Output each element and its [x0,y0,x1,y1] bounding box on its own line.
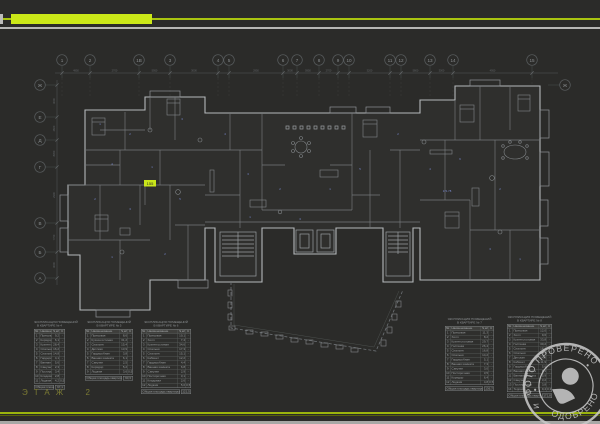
table-cell: 6,1 [52,339,60,343]
table-grid: №НаименованиеS,м²К1Прихожая9,2-2Коридор6… [34,329,65,384]
table-cell: - [128,334,133,338]
table-cell: Кладовая [147,379,178,383]
table-cell: Спальня [40,348,52,352]
table-row: 12Лоджия4,80,5 [446,381,494,385]
table-cell: - [186,361,191,365]
table-cell: К [60,330,65,334]
table-cell: 26,4 [481,345,489,349]
table-cell: Спальня [451,354,481,358]
table-cell: - [186,366,191,370]
table-cell: Лоджия [40,379,52,383]
grid-bubble-label: 11 [388,58,393,63]
table-total-row: Общая площадь квартиры121,5 [141,390,191,395]
dim-value: 2950 [253,68,259,72]
dim-value: 2300 [52,192,56,198]
table-cell: - [489,354,494,358]
table-cell: 16,2 [52,348,60,352]
table-cell: 31,2 [120,339,128,343]
table-cell: 34,6 [178,343,186,347]
dim-value: 4950 [73,68,79,72]
table-title: ЭКСПЛИКАЦИЯ ПОМЕЩЕНИЙВ КВАРТИРЕ № 6 [141,321,191,328]
table-cell: - [186,379,191,383]
table-cell: Кухня-столовая [451,340,481,344]
table-cell: Наименование [147,330,178,334]
grid-bubble-label: 14 [450,58,456,63]
table-cell: 2,3 [52,366,60,370]
table-cell: - [128,357,133,361]
grid-bubble-label: Ж [563,83,568,88]
table-cell: - [128,352,133,356]
table-cell: 3,4 [52,370,60,374]
dim-value: 7750 [52,234,56,240]
dim-value: 2600 [52,125,56,131]
table-cell: Гардеробная [91,352,120,356]
table-cell: - [60,339,65,343]
table-cell: Ванная комната [147,366,178,370]
highlighted-room-tag: 155 [144,180,156,187]
table-cell: - [128,339,133,343]
table-total-row: Общая площадь квартиры90,3 [85,376,133,381]
table-cell: 4,8 [481,381,489,385]
table-cell: - [60,361,65,365]
table-cell: 2,5 [120,361,128,365]
table-cell: К [547,325,552,329]
table-title: ЭКСПЛИКАЦИЯ ПОМЕЩЕНИЙВ КВАРТИРЕ № 8 [507,316,552,323]
table-cell: Ванная комната [91,357,120,361]
table-cell: 29,7 [481,340,489,344]
grid-bubble-label: 6 [282,58,285,63]
table-cell: Спальня [40,352,52,356]
approval-stamp: ФОТО ПРОВЕРЕНО ОДОБРЕНО И • • [511,331,600,424]
table-cell: 16,8 [481,349,489,353]
table-cell: 15,1 [178,352,186,356]
explication-table: ЭКСПЛИКАЦИЯ ПОМЕЩЕНИЙВ КВАРТИРЕ № 5№Наим… [85,321,133,381]
table-cell: - [489,376,494,380]
highlight-tag-label: 155 [147,181,154,186]
table-cell: К [128,330,133,334]
bottom-accent-line [0,412,600,414]
table-cell: 3,0 [481,367,489,371]
grid-bubble-label: Е [38,115,41,120]
table-cell: Наименование [451,327,481,331]
room-tag: 171.78 [443,189,452,193]
table-cell: - [60,357,65,361]
table-total-row: Общая площадь квартиры136,7 [445,387,494,392]
grid-bubble-label: Д [38,138,42,143]
table-cell: 11,3 [481,331,489,335]
table-cell: 4,1 [52,357,60,361]
table-cell: Прихожая [147,334,178,338]
grid-bubble-label: 1В [136,58,142,63]
table-cell: 6,4 [481,376,489,380]
table-cell: - [60,348,65,352]
table-cell: Наименование [40,330,52,334]
table-cell: 0,5 [60,379,65,383]
table-cell: 10,1 [178,334,186,338]
table-cell: 12,2 [178,357,186,361]
table-cell: Гардеробная [451,358,481,362]
grid-bubble-label: 3 [169,58,172,63]
table-cell: 6,1 [120,357,128,361]
table-cell: - [128,366,133,370]
table-cell: S,м² [120,330,128,334]
grid-bubble-label: 5 [228,58,231,63]
table-grid: №НаименованиеS,м²К1Прихожая8,6-2Кухня-го… [85,329,133,375]
table-cell: S,м² [52,330,60,334]
table-title: ЭКСПЛИКАЦИЯ ПОМЕЩЕНИЙВ КВАРТИРЕ № 5 [85,321,133,328]
table-cell: Санузел [147,370,178,374]
table-cell: Гардеробная [147,361,178,365]
table-cell: - [489,336,494,340]
table-cell: - [489,340,494,344]
table-grid: №НаименованиеS,м²К1Прихожая11,3-2Холл8,2… [445,326,494,385]
table-cell: S,м² [481,327,489,331]
table-cell: - [489,372,494,376]
table-cell: 9,2 [52,334,60,338]
table-cell: К [186,330,191,334]
table-cell: 4,2 [52,379,60,383]
table-cell: 14,8 [52,352,60,356]
table-cell: 2,6 [178,379,186,383]
table-cell: 3,6 [120,370,128,374]
table-cell: - [186,357,191,361]
table-cell: Спальня [91,343,120,347]
table-cell: 7,3 [481,363,489,367]
table-cell: 7,4 [178,339,186,343]
table-cell: - [128,361,133,365]
table-cell: Постирочная [147,375,178,379]
table-cell: Спальня [451,349,481,353]
table-cell: Лоджия [91,370,120,374]
table-cell: Ванная комната [40,361,52,365]
table-cell: - [489,363,494,367]
grid-bubble-label: 13 [427,58,433,63]
table-cell: - [489,358,494,362]
table-cell: 17,3 [178,348,186,352]
table-cell: Прихожая [451,331,481,335]
table-cell: - [128,348,133,352]
table-cell: 6,8 [178,366,186,370]
table-cell: - [128,343,133,347]
table-cell: 5,0 [178,384,186,388]
drawing-sheet: 121В3456789101112131415ЖЕДГВБАЖ 49502700… [0,0,600,424]
grid-bubble-label: 2 [89,58,92,63]
grid-bubble-label: 1 [61,58,64,63]
table-cell: Кладовая [40,375,52,379]
table-cell: - [60,366,65,370]
grid-bubble-label: 4 [217,58,220,63]
grid-bubble-label: А [38,276,42,281]
table-grid: №НаименованиеS,м²К1Прихожая10,1-2Холл7,4… [141,329,191,388]
table-row: 11Лоджия4,20,5 [35,379,65,383]
table-cell: S,м² [178,330,186,334]
table-cell: S,м² [539,325,547,329]
table-row: 12Лоджия5,00,5 [142,384,191,388]
table-cell: - [489,367,494,371]
table-cell: 2,9 [178,370,186,374]
table-cell: Кухня-гостиная [147,343,178,347]
table-cell: Санузел [40,366,52,370]
table-cell: - [186,343,191,347]
table-cell: - [489,331,494,335]
dim-value: 5950 [152,68,158,72]
grid-bubble-label: 15 [529,58,535,63]
table-cell: - [186,334,191,338]
table-cell: 8,2 [481,336,489,340]
table-cell: 121,5 [181,390,191,395]
bottom-accent-shadow [0,415,600,416]
table-cell: Кухня-гостиная [40,343,52,347]
grid-bubble-label: 7 [296,58,299,63]
table-cell: 13,9 [120,348,128,352]
table-cell: 5,6 [52,361,60,365]
table-cell: 5,1 [481,358,489,362]
table-row: 9Лоджия3,60,5 [86,370,133,374]
table-cell: Общая площадь квартиры [85,376,122,381]
table-cell: Санузел [91,361,120,365]
table-cell: 15,4 [120,343,128,347]
table-cell: Прихожая [91,334,120,338]
table-cell: Наименование [91,330,120,334]
table-cell: Лоджия [147,384,178,388]
table-cell: 90,3 [123,376,133,381]
table-cell: 136,7 [484,387,494,392]
dim-value: 3000 [439,68,445,72]
table-cell: Холл [451,336,481,340]
table-cell: К [489,327,494,331]
table-cell: 28,4 [52,343,60,347]
table-cell: - [489,349,494,353]
table-cell: 2,8 [52,375,60,379]
grid-bubble-label: В [38,221,41,226]
table-cell: 3,8 [120,352,128,356]
table-cell: Кабинет [147,357,178,361]
table-cell: Постирочная [451,372,481,376]
dim-value: 5800 [413,68,419,72]
terrace-outline [228,282,403,352]
table-cell: 5,2 [120,366,128,370]
table-cell: - [186,375,191,379]
dim-value: 5950 [305,68,311,72]
explication-table: ЭКСПЛИКАЦИЯ ПОМЕЩЕНИЙВ КВАРТИРЕ № 4№Наим… [34,321,65,390]
dim-value: 3200 [367,68,373,72]
table-cell: - [60,352,65,356]
stamp-group: ФОТО ПРОВЕРЕНО ОДОБРЕНО И • • [511,331,600,424]
floor-title: ЭТАЖ 2 [22,388,96,397]
table-cell: - [186,348,191,352]
dim-value: 3000 [287,68,293,72]
table-cell: Санузел [451,367,481,371]
table-cell: - [60,375,65,379]
grid-bubble-label: Ж [38,83,43,88]
table-cell: Лоджия [451,381,481,385]
dim-value: 8350 [52,150,56,156]
grid-bubble-label: 10 [346,58,352,63]
table-cell: Кухня-гостиная [91,339,120,343]
dim-value: 3000 [52,262,56,268]
table-cell: - [60,370,65,374]
table-cell: - [60,343,65,347]
table-cell: Спальня [147,352,178,356]
table-cell: 0,5 [489,381,494,385]
dim-value: 2700 [112,68,118,72]
table-cell: Коридор [40,339,52,343]
table-cell: Общая площадь квартиры [141,390,180,395]
table-cell: Гостиная [451,345,481,349]
grid-bubble-label: Б [38,250,41,255]
table-cell: - [489,345,494,349]
table-cell: 3,1 [178,375,186,379]
dim-value: 3000 [191,68,197,72]
table-title: ЭКСПЛИКАЦИЯ ПОМЕЩЕНИЙВ КВАРТИРЕ № 7 [445,318,494,325]
stamp-side-letter: И [532,403,541,409]
dim-value: 2700 [326,68,332,72]
explication-table: ЭКСПЛИКАЦИЯ ПОМЕЩЕНИЙВ КВАРТИРЕ № 6№Наим… [141,321,191,394]
grid-bubble-label: 8 [318,58,321,63]
table-cell: - [186,352,191,356]
table-cell: Коридор [91,366,120,370]
table-cell: Прихожая [40,334,52,338]
dim-value: 3000 [52,98,56,104]
table-title: ЭКСПЛИКАЦИЯ ПОМЕЩЕНИЙВ КВАРТИРЕ № 4 [34,321,65,328]
dim-value: 4950 [490,68,496,72]
table-cell: Спальня [147,348,178,352]
table-cell: Коридор [451,376,481,380]
table-cell: 14,2 [481,354,489,358]
grid-bubble-label: 12 [398,58,404,63]
table-cell: Холл [147,339,178,343]
grid-bubble-label: Г [39,165,42,170]
table-cell: - [60,334,65,338]
table-cell: Общая площадь квартиры [445,387,483,392]
table-cell: Наименование [513,325,539,329]
table-cell: 0,5 [128,370,133,374]
building-outline [68,86,540,310]
table-cell: Детская [91,348,120,352]
grid-bubble-label: 9 [337,58,340,63]
camera-icon [547,365,588,406]
table-cell: - [186,339,191,343]
table-cell: 0,5 [186,384,191,388]
table-cell: - [186,370,191,374]
table-cell: Постирочная [40,370,52,374]
table-cell: 8,6 [120,334,128,338]
table-cell: 4,4 [178,361,186,365]
table-cell: 3,5 [481,372,489,376]
table-cell: Ванная комната [451,363,481,367]
explication-table: ЭКСПЛИКАЦИЯ ПОМЕЩЕНИЙВ КВАРТИРЕ № 7№Наим… [445,318,494,391]
table-cell: Гардеробная [40,357,52,361]
